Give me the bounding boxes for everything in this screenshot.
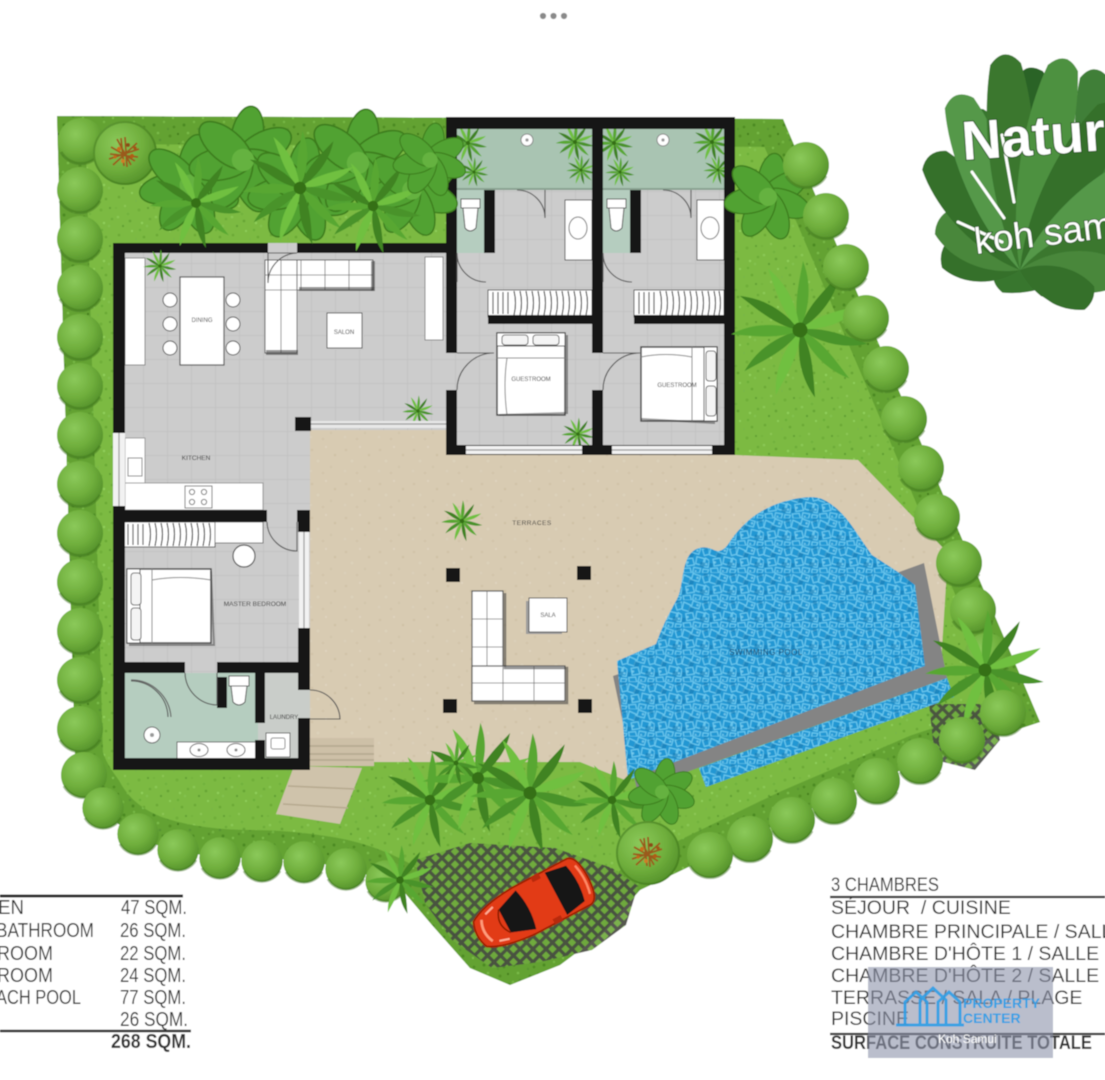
svg-text:SWIMMING POOL: SWIMMING POOL (729, 648, 803, 657)
svg-text:SÉJOUR / CUISINE: SÉJOUR / CUISINE (831, 896, 1011, 919)
svg-text:PROPERTY: PROPERTY (963, 995, 1041, 1011)
svg-text:KITCHEN: KITCHEN (182, 455, 211, 462)
svg-text:22 SQM.: 22 SQM. (120, 943, 186, 965)
svg-text:MASTER BEDROOM: MASTER BEDROOM (224, 601, 286, 608)
svg-text:ACH POOL: ACH POOL (0, 987, 81, 1009)
svg-text:BATHROOM: BATHROOM (0, 920, 94, 942)
svg-text:268 SQM.: 268 SQM. (111, 1031, 191, 1053)
svg-text:DINING: DINING (192, 318, 213, 324)
svg-text:TERRACES: TERRACES (512, 520, 552, 527)
svg-text:GUESTROOM: GUESTROOM (657, 383, 696, 389)
svg-text:CENTER: CENTER (963, 1010, 1021, 1026)
svg-text:ROOM: ROOM (0, 943, 53, 965)
svg-text:EN: EN (0, 897, 24, 919)
svg-text:26 SQM.: 26 SQM. (120, 1009, 188, 1031)
svg-text:CHAMBRE D'HÔTE 1 / SALLE DE BA: CHAMBRE D'HÔTE 1 / SALLE DE BA (831, 942, 1105, 965)
svg-text:47 SQM.: 47 SQM. (121, 897, 187, 919)
svg-text:SALA: SALA (540, 613, 555, 619)
svg-text:24 SQM.: 24 SQM. (120, 965, 186, 987)
svg-text:GUESTROOM: GUESTROOM (511, 377, 550, 383)
svg-text:3 CHAMBRES: 3 CHAMBRES (831, 874, 939, 896)
svg-text:LAUNDRY: LAUNDRY (270, 715, 299, 721)
svg-text:Nature: Nature (960, 98, 1105, 172)
svg-text:CHAMBRE PRINCIPALE / SALLE DE: CHAMBRE PRINCIPALE / SALLE DE B (831, 921, 1105, 943)
svg-text:Koh Samui: Koh Samui (938, 1032, 997, 1046)
svg-text:77 SQM.: 77 SQM. (120, 987, 186, 1009)
svg-text:SALON: SALON (334, 330, 354, 336)
svg-text:26 SQM.: 26 SQM. (120, 920, 186, 942)
svg-text:ROOM: ROOM (0, 965, 53, 987)
